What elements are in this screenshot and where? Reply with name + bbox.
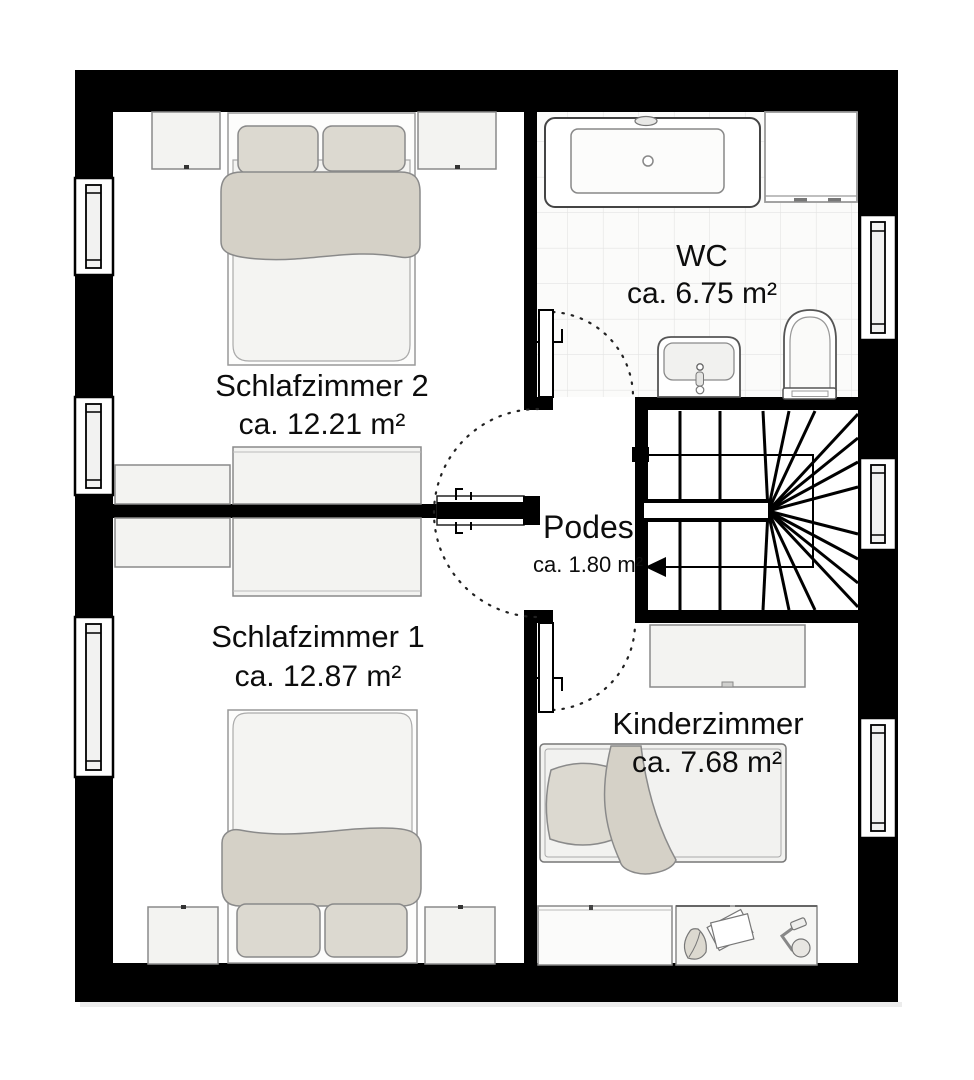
nightstand xyxy=(152,112,220,169)
room-label-podest: Podes xyxy=(543,509,634,545)
staircase xyxy=(632,410,858,610)
room-label-kinderzimmer: Kinderzimmer xyxy=(612,706,803,741)
bathtub-icon xyxy=(545,117,760,208)
pillow xyxy=(323,126,405,171)
room-label-schlafzimmer-1: Schlafzimmer 1 xyxy=(211,619,425,654)
window-right-wc xyxy=(860,215,896,340)
window-right-stair xyxy=(860,458,896,550)
sideboard xyxy=(538,905,672,965)
wall-sz2-wc xyxy=(524,112,537,397)
wall-sz2-sz1-divider xyxy=(113,504,437,518)
sink-icon xyxy=(658,337,740,397)
nightstand xyxy=(418,112,496,169)
stair-handrail xyxy=(642,501,770,520)
stair-handrail-post xyxy=(632,447,649,462)
wc-cabinet xyxy=(765,112,857,202)
nightstand xyxy=(425,907,495,964)
double-bed xyxy=(221,113,420,365)
desk xyxy=(676,906,817,965)
room-area-wc: ca. 6.75 m² xyxy=(627,277,777,310)
shelf xyxy=(115,465,230,504)
pillow xyxy=(238,126,318,173)
wall-stair-kinderzimmer xyxy=(635,610,858,623)
pillow xyxy=(325,904,407,957)
kinderzimmer-door-leaf xyxy=(539,623,553,712)
floor-plan: Schlafzimmer 2 ca. 12.21 m² Schlafzimmer… xyxy=(0,0,974,1080)
wall-sz1-kinderzimmer xyxy=(524,623,537,963)
room-area-podest: ca. 1.80 m² xyxy=(533,552,643,577)
window-left-3 xyxy=(75,617,113,777)
room-area-schlafzimmer-1: ca. 12.87 m² xyxy=(235,660,402,693)
wardrobe xyxy=(650,625,805,687)
shelf xyxy=(115,518,230,567)
floor-plan-canvas: Schlafzimmer 2 ca. 12.21 m² Schlafzimmer… xyxy=(0,0,974,1080)
duvet xyxy=(221,172,420,260)
room-label-schlafzimmer-2: Schlafzimmer 2 xyxy=(215,368,429,403)
room-label-wc: WC xyxy=(676,238,728,273)
exterior-wall-bottom xyxy=(75,963,898,1002)
window-left-1 xyxy=(75,178,113,275)
window-right-kinderzimmer xyxy=(860,718,896,838)
plan-shadow xyxy=(80,1002,902,1007)
exterior-wall-top xyxy=(75,70,898,112)
window-left-2 xyxy=(75,397,113,495)
bedroom-door-hinge-cap xyxy=(523,496,540,525)
duvet xyxy=(222,828,421,906)
bathtub-faucet-icon xyxy=(635,117,657,126)
room-area-schlafzimmer-2: ca. 12.21 m² xyxy=(239,408,406,441)
double-bed xyxy=(222,710,421,963)
wall-kinderzimmer-hinge-block xyxy=(524,610,553,623)
wardrobe xyxy=(233,518,421,596)
nightstand xyxy=(148,907,218,964)
wardrobe xyxy=(233,447,421,504)
wc-door-leaf xyxy=(539,310,553,397)
room-area-kinderzimmer: ca. 7.68 m² xyxy=(632,746,782,779)
toilet-icon xyxy=(783,310,836,399)
pillow xyxy=(237,904,320,957)
